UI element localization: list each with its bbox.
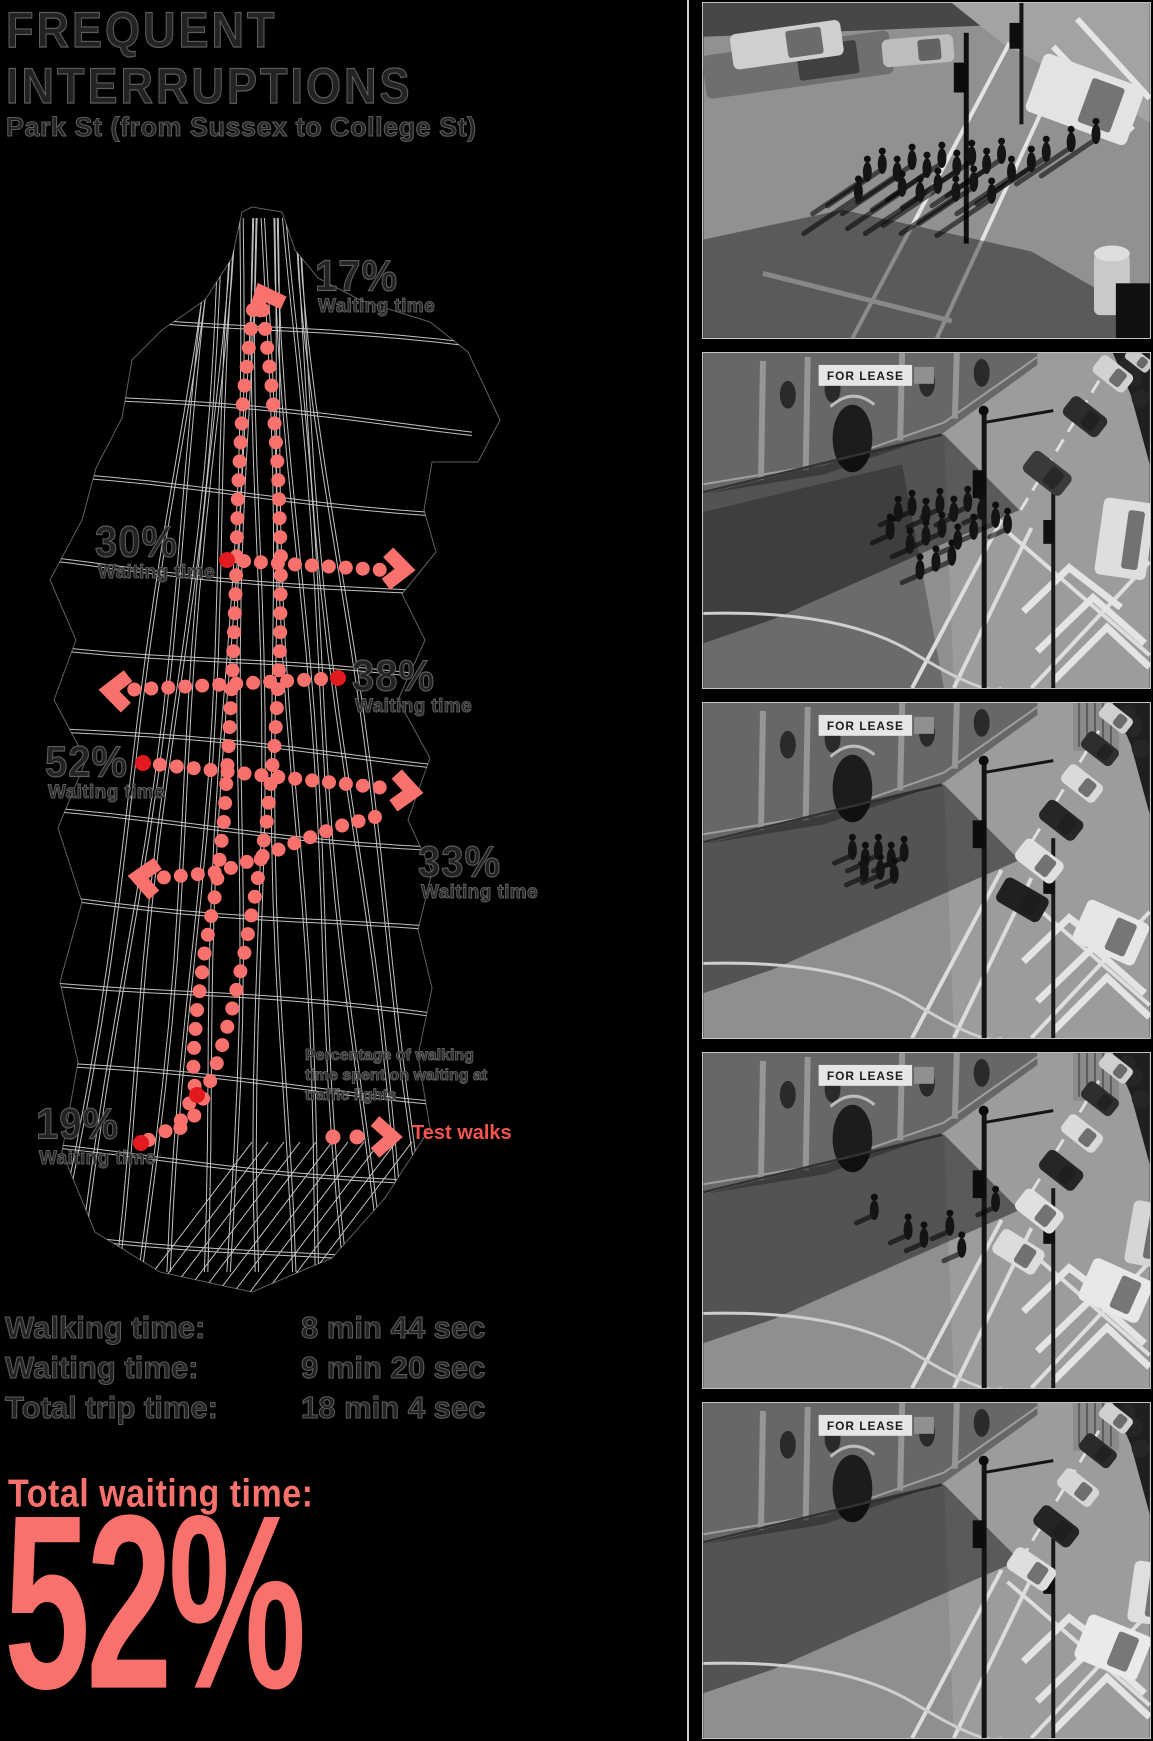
subtitle: Park St (from Sussex to College St) xyxy=(6,112,477,143)
photo-4: FOR LEASE xyxy=(702,1052,1151,1389)
route-33-percent: 33% xyxy=(418,838,501,888)
vertical-divider-line xyxy=(687,0,689,1741)
route-30-caption: Waiting time xyxy=(98,562,215,584)
legend-description: Percentage of walking time spent on wait… xyxy=(305,1046,497,1106)
for-lease-sign: FOR LEASE xyxy=(827,369,904,383)
stat-label: Waiting time: xyxy=(5,1350,293,1386)
route-52-caption: Waiting time xyxy=(48,782,165,804)
legend-test-walks-label: Test walks xyxy=(412,1122,512,1145)
total-waiting-time-value: 52% xyxy=(4,1478,302,1726)
title-line-2: INTERRUPTIONS xyxy=(6,58,413,114)
route-38-caption: Waiting time xyxy=(355,696,472,718)
photo-1 xyxy=(702,2,1151,339)
stat-value: 8 min 44 sec xyxy=(301,1310,485,1346)
stat-row-total-trip-time: Total trip time: 18 min 4 sec xyxy=(5,1390,625,1430)
for-lease-sign: FOR LEASE xyxy=(827,1419,904,1433)
route-19-caption: Waiting time xyxy=(39,1148,156,1170)
stat-value: 9 min 20 sec xyxy=(301,1350,485,1386)
photo-5: FOR LEASE xyxy=(702,1402,1151,1739)
photo-3: FOR LEASE xyxy=(702,702,1151,1039)
stat-row-waiting-time: Waiting time: 9 min 20 sec xyxy=(5,1350,625,1390)
stat-label: Walking time: xyxy=(5,1310,293,1346)
route-30-percent: 30% xyxy=(95,518,178,568)
title-line-1: FREQUENT xyxy=(6,2,413,58)
stat-value: 18 min 4 sec xyxy=(301,1390,485,1426)
route-33-caption: Waiting time xyxy=(421,882,538,904)
route-19-percent: 19% xyxy=(36,1100,119,1150)
stat-label: Total trip time: xyxy=(5,1390,293,1426)
for-lease-sign: FOR LEASE xyxy=(827,1069,904,1083)
poster-title: FREQUENT INTERRUPTIONS xyxy=(6,2,413,108)
route-17-percent: 17% xyxy=(315,252,398,302)
for-lease-sign: FOR LEASE xyxy=(827,719,904,733)
route-38-percent: 38% xyxy=(352,652,435,702)
route-17-caption: Waiting time xyxy=(318,296,435,318)
photo-2: FOR LEASE xyxy=(702,352,1151,689)
stat-row-walking-time: Walking time: 8 min 44 sec xyxy=(5,1310,625,1350)
route-52-percent: 52% xyxy=(45,738,128,788)
